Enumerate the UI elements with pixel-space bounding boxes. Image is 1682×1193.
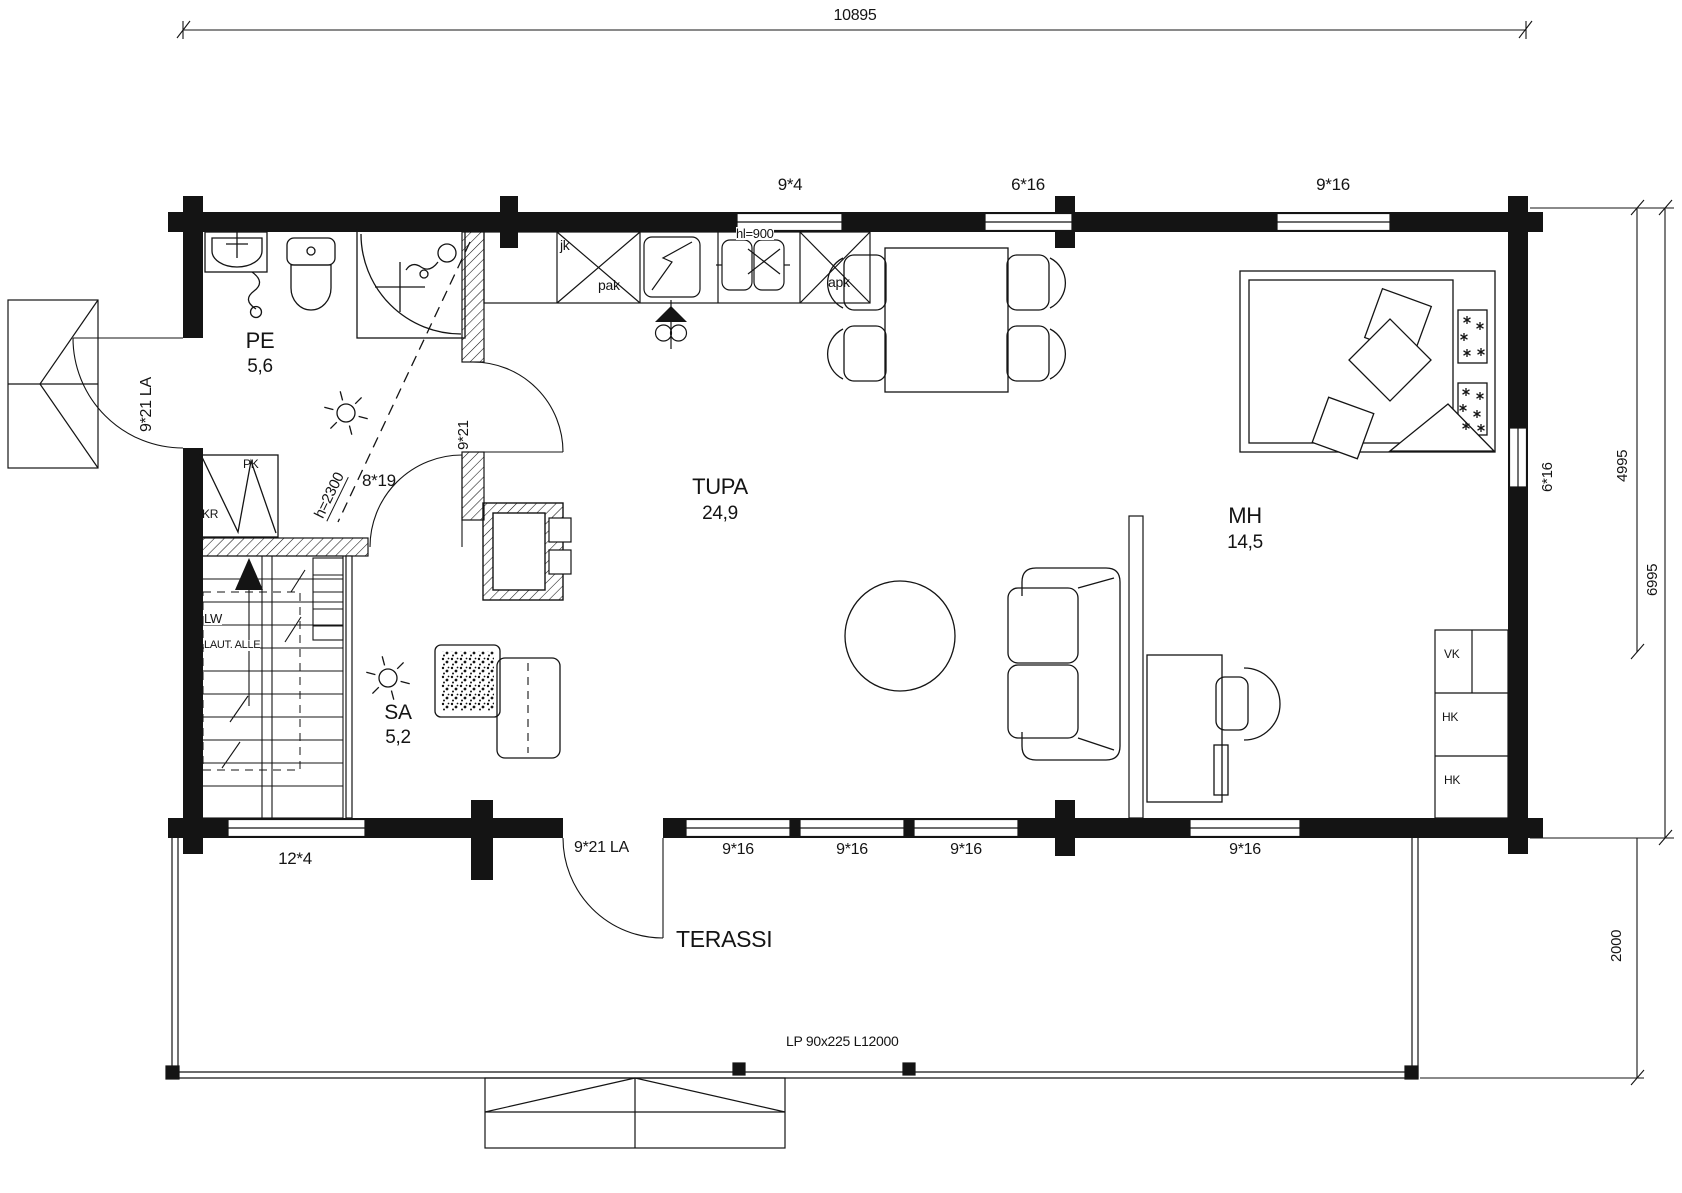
label-pk: PK xyxy=(243,458,258,470)
kitchen-label-jk: jk xyxy=(560,238,570,252)
fireplace xyxy=(483,503,571,600)
cushion xyxy=(1312,397,1374,459)
window-label-right: 6*16 xyxy=(1540,462,1555,492)
closet-label-hk2: HK xyxy=(1444,774,1460,786)
staircase xyxy=(190,556,343,818)
closet-label-vk: VK xyxy=(1444,648,1459,660)
room-area-tupa: 24,9 xyxy=(660,504,780,523)
vent-symbol xyxy=(655,300,687,349)
room-label-pe: PE xyxy=(230,330,290,352)
blanket-fold xyxy=(1390,404,1494,451)
washer-dryer-cabinet xyxy=(200,455,278,537)
window-label-bottom-3: 9*16 xyxy=(802,842,902,858)
round-table xyxy=(845,581,955,691)
light-symbol-pe xyxy=(324,391,367,434)
dimension-lines xyxy=(177,21,1674,1085)
window-label-bottom-2: 9*16 xyxy=(688,842,788,858)
closet-label-hk1: HK xyxy=(1442,711,1458,723)
dimension-right-total: 6995 xyxy=(1645,564,1660,596)
stair-label-laut-alle: LAUT. ALLE xyxy=(204,640,260,651)
room-label-tupa: TUPA xyxy=(660,476,780,498)
window-label-top-3: 9*16 xyxy=(1283,176,1383,193)
room-label-mh: MH xyxy=(1200,505,1290,527)
shower xyxy=(357,230,465,338)
room-area-pe: 5,6 xyxy=(230,357,290,376)
stair-shelf xyxy=(313,558,343,640)
door-label-9x21: 9*21 xyxy=(456,420,471,450)
sink xyxy=(205,228,267,318)
desk-chair xyxy=(1216,677,1248,730)
exterior-walls xyxy=(168,196,1543,880)
kitchen-stove xyxy=(644,237,700,297)
light-symbol-sa xyxy=(366,656,409,699)
dining-set xyxy=(828,248,1066,392)
label-kr: KR xyxy=(202,508,218,520)
beam-note: LP 90x225 L12000 xyxy=(786,1034,899,1048)
dimension-top: 10895 xyxy=(790,8,920,24)
bed-decor-stars xyxy=(1460,316,1485,432)
door-label-8x19: 8*19 xyxy=(362,472,396,489)
window-label-bottom-5: 9*16 xyxy=(1195,842,1295,858)
dimension-right-upper: 4995 xyxy=(1615,450,1630,482)
dining-table xyxy=(885,248,1008,392)
kitchen-label-apk: apk xyxy=(828,275,850,289)
sink-basin-left xyxy=(722,240,752,290)
window-label-bottom-1: 12*4 xyxy=(250,850,340,867)
kitchen-counter xyxy=(484,232,870,303)
bed xyxy=(1240,271,1495,459)
stair-label-lw: LW xyxy=(204,612,222,625)
sofa xyxy=(1008,568,1120,760)
window-label-top-2: 6*16 xyxy=(978,176,1078,193)
window-label-top-1: 9*4 xyxy=(740,176,840,193)
room-label-terassi: TERASSI xyxy=(676,928,772,951)
entrance-steps-canopy xyxy=(485,1078,785,1148)
door-label-left: 9*21 LA xyxy=(139,377,155,432)
window-label-bottom-4: 9*16 xyxy=(916,842,1016,858)
ceiling-slope-line xyxy=(338,242,470,522)
kitchen-label-hl900: hl=900 xyxy=(736,227,774,240)
toilet xyxy=(287,238,335,310)
stair-direction-arrow xyxy=(235,558,263,590)
room-area-sa: 5,2 xyxy=(368,728,428,747)
room-label-sa: SA xyxy=(368,702,428,723)
room-area-mh: 14,5 xyxy=(1200,533,1290,552)
side-porch-canopy xyxy=(8,300,98,468)
kitchen-label-pak: pak xyxy=(598,278,620,292)
desk xyxy=(1147,655,1222,802)
floor-plan: 10895 9*4 6*16 9*16 9*21 LA PE 5,6 jk pa… xyxy=(0,0,1682,1193)
dimension-terrace-depth: 2000 xyxy=(1609,930,1624,962)
desk-and-chair xyxy=(1147,655,1280,802)
floor-plan-drawing xyxy=(0,0,1682,1193)
door-label-bottom: 9*21 LA xyxy=(574,840,629,856)
